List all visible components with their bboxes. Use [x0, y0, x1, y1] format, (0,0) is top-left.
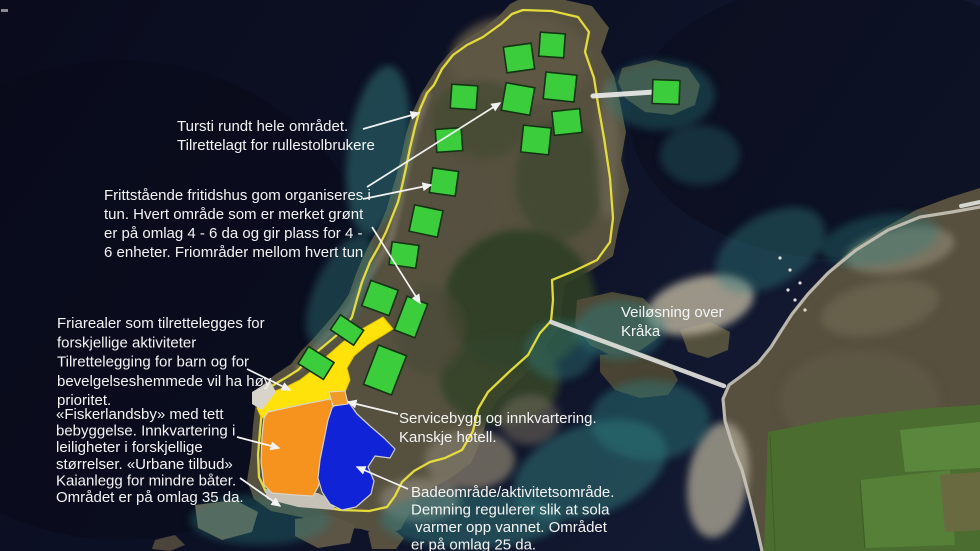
tun-area-marker-11	[389, 242, 419, 269]
tun-area-marker-8	[435, 128, 463, 153]
tun-area-marker-7	[521, 125, 552, 155]
zone-servicebygg-orange-small	[329, 391, 348, 406]
tun-area-marker-6	[552, 109, 582, 136]
label-fiskerlandsby: «Fiskerlandsby» med tettbebyggelse. Innk…	[56, 406, 244, 506]
scan-artifact	[1, 9, 8, 12]
tun-area-marker-5	[450, 84, 478, 110]
tun-area-marker-9	[429, 168, 458, 196]
tun-area-marker-1	[503, 43, 534, 73]
tun-area-marker-12	[652, 80, 680, 105]
tun-area-marker-3	[543, 72, 577, 102]
tun-area-marker-2	[539, 32, 566, 58]
tun-area-marker-4	[501, 83, 534, 116]
tun-area-marker-10	[409, 205, 443, 237]
aerial-photo-canvas: Tursti rundt hele området.Tilrettelagt f…	[0, 0, 980, 551]
site-plan-map: Tursti rundt hele området.Tilrettelagt f…	[0, 0, 980, 551]
